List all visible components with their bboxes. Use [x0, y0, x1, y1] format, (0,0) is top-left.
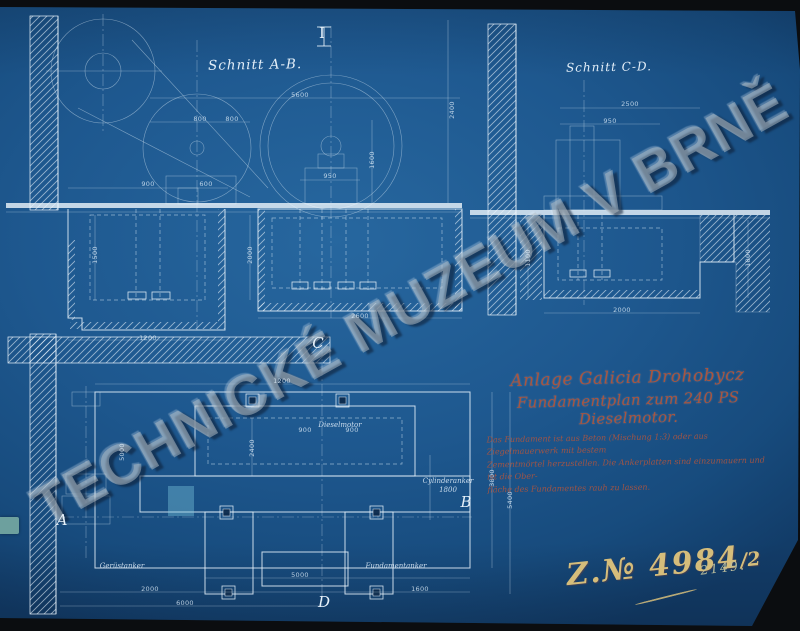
ground-line [6, 203, 462, 208]
highlight-patch [168, 486, 194, 516]
foundation-pit-outline [68, 209, 225, 330]
archive-tab [0, 517, 19, 534]
wall-hatch [30, 16, 58, 210]
blueprint-photo: TECHNICKÉ MUZEUM V BRNĚ Schnitt A-B. Sch… [0, 0, 800, 631]
